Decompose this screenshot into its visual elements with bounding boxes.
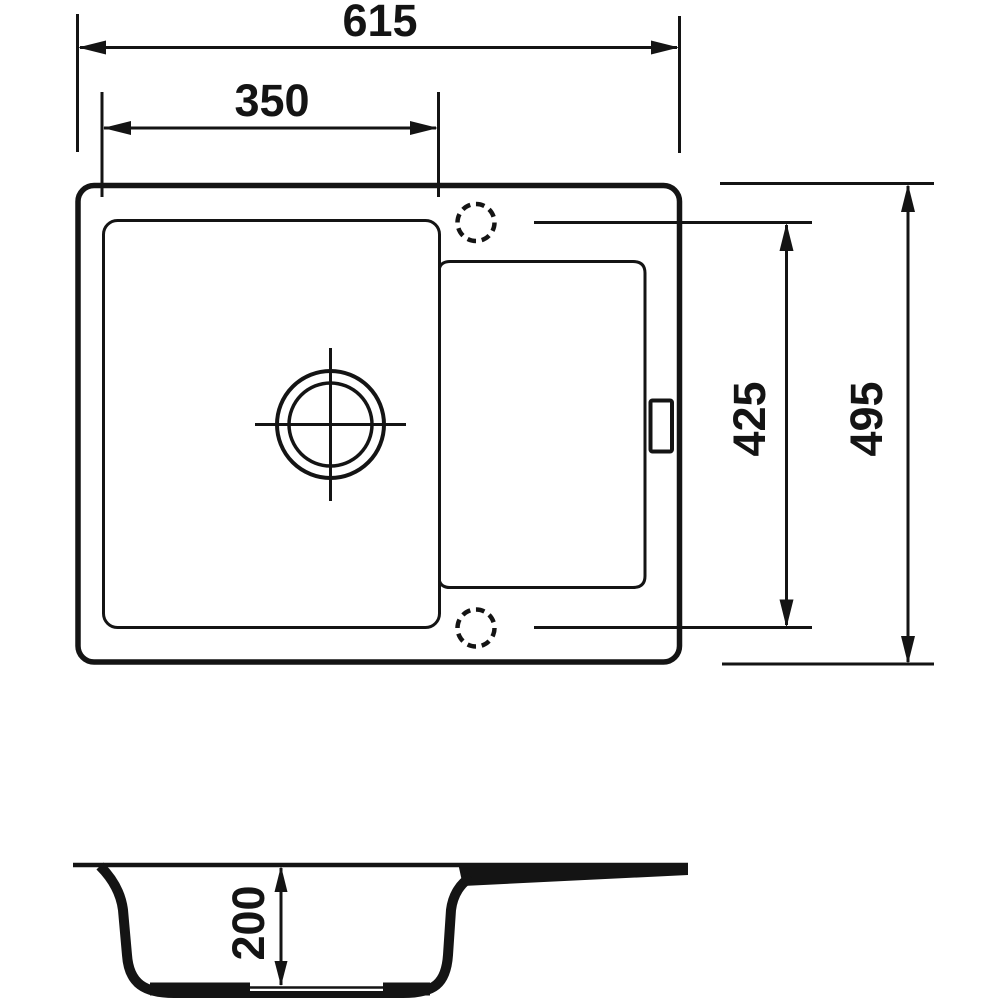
- drain: [255, 348, 406, 501]
- arrowhead-bottom: [901, 636, 915, 664]
- sink-dimension-drawing: 615 350 425: [0, 0, 1000, 1000]
- section-view: 200: [73, 863, 688, 993]
- arrowhead-right: [410, 121, 438, 135]
- arrowhead-left: [103, 121, 131, 135]
- arrowhead-top: [275, 866, 288, 892]
- dim-label-overall-depth: 495: [841, 381, 892, 456]
- drainboard-outline: [440, 262, 646, 588]
- dim-bowl-width: 350: [102, 75, 439, 197]
- arrowhead-left: [78, 41, 106, 55]
- arrowhead-right: [651, 41, 679, 55]
- overflow-slot: [651, 401, 673, 452]
- section-drainboard-slab: [458, 863, 688, 886]
- dim-label-bowl-depth: 200: [223, 885, 274, 960]
- tap-hole-bottom: [458, 610, 495, 647]
- technical-drawing-page: 615 350 425: [0, 0, 1000, 1000]
- arrowhead-top: [780, 223, 794, 251]
- arrowhead-bottom: [780, 600, 794, 628]
- dim-label-bowl-width: 350: [234, 75, 309, 126]
- dim-label-overall-width: 615: [342, 0, 417, 46]
- dim-label-tap-hole-span: 425: [724, 381, 775, 456]
- dim-overall-width: 615: [78, 0, 680, 153]
- dim-bowl-depth: 200: [223, 865, 312, 987]
- arrowhead-top: [901, 184, 915, 212]
- plan-view: 615 350 425: [78, 0, 935, 664]
- tap-hole-top: [458, 204, 495, 241]
